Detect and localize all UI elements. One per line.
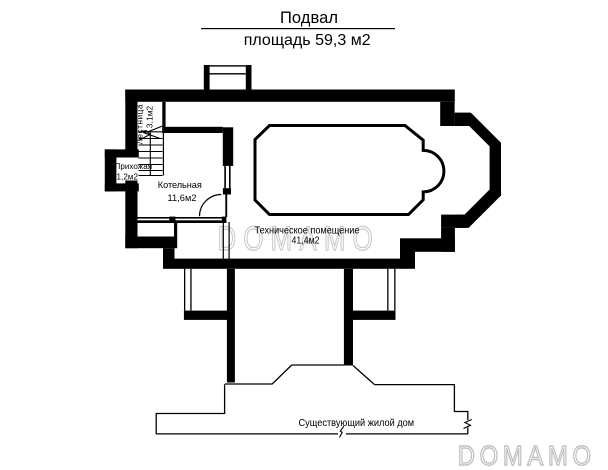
svg-text:3,1м2: 3,1м2 (146, 105, 155, 128)
svg-text:Прихожая: Прихожая (115, 162, 153, 171)
svg-text:Подвал: Подвал (280, 9, 338, 27)
svg-text:Существующий жилой дом: Существующий жилой дом (299, 418, 415, 429)
svg-text:площадь 59,3 м2: площадь 59,3 м2 (244, 32, 371, 49)
svg-text:11,6м2: 11,6м2 (168, 193, 197, 203)
svg-text:41,4м2: 41,4м2 (292, 236, 320, 247)
svg-text:Лестница: Лестница (135, 104, 144, 144)
svg-text:1,2м2: 1,2м2 (116, 173, 138, 182)
svg-text:Котельная: Котельная (158, 180, 202, 190)
